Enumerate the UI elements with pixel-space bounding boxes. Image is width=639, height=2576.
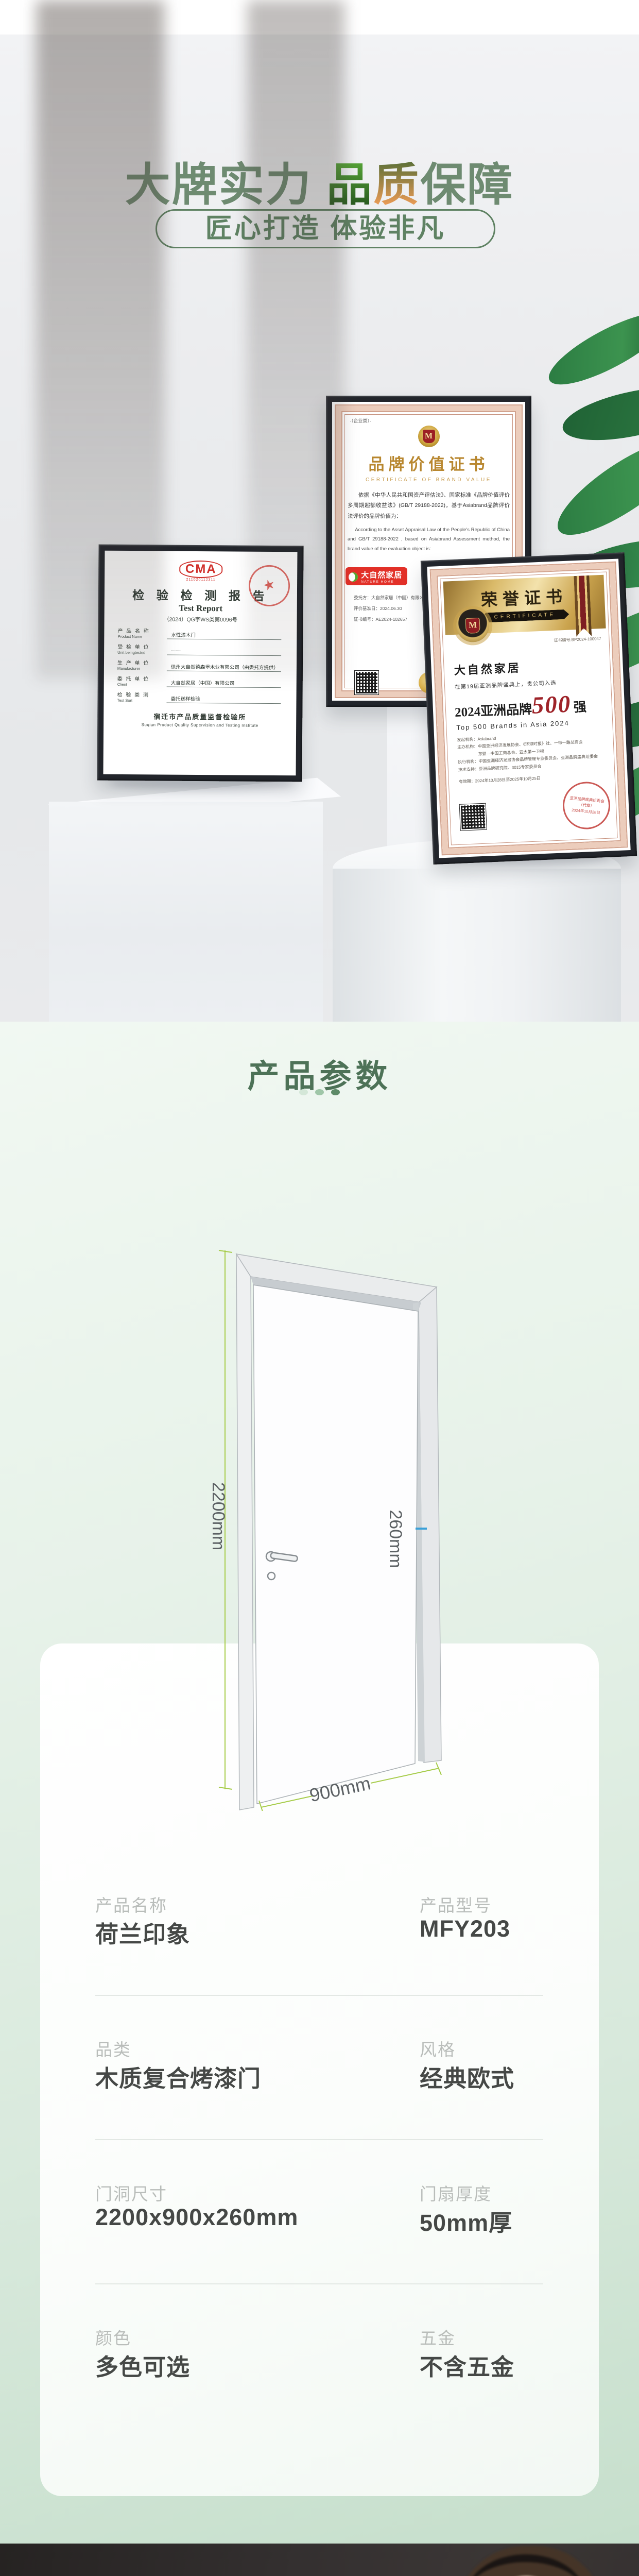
hero-title-right: 保障: [420, 159, 514, 210]
cert3-qr-code: [460, 804, 487, 831]
cert1-institute-zh: 宿迁市产品质量监督检验所: [103, 711, 296, 722]
product-detail-page: 大牌实力 品质保障 匠心打造 体验非凡 ·（企业类）· M 品牌价值证书 CER…: [0, 0, 639, 2576]
spec-label: 门洞尺寸: [95, 2180, 167, 2205]
cert3-organizations: 发起机构：Asiabrand 主办机构：中国亚洲经济发展协会、《环球时报》社、一…: [457, 730, 627, 774]
cert2-qr-code: [355, 671, 378, 694]
nature-home-logo: 大自然家居 NATURE HOME: [346, 567, 407, 585]
spec-value: MFY203: [420, 1916, 510, 1942]
cert2-paragraph-en: According to the Asset Appraisal Law of …: [348, 526, 510, 553]
spec-label: 风格: [420, 2036, 456, 2061]
spec-divider: [95, 2139, 543, 2140]
spec-value: 多色可选: [95, 2348, 190, 2382]
spec-label: 产品名称: [95, 1892, 167, 1917]
spec-value: 50mm厚: [420, 2204, 512, 2238]
service-bg-blur: [247, 0, 345, 679]
cma-logo: CMA: [179, 561, 223, 579]
spec-value: 不含五金: [420, 2348, 514, 2382]
params-title-dots: [0, 1089, 639, 1095]
spec-value: 经典欧式: [420, 2060, 514, 2093]
spec-label: 产品型号: [420, 1892, 492, 1917]
door-height-label: 2200mm: [209, 1482, 228, 1550]
pedestal-front: [49, 802, 323, 1022]
cert2-paragraph-zh: 依据《中华人民共和国资产评估法》、国家标准《品牌价值评价 多周期超额收益法》(G…: [348, 490, 510, 521]
cert3-banner: CERTIFICATE: [480, 609, 569, 623]
cert3-ribbon-icon: [574, 575, 592, 637]
spec-value: 木质复合烤漆门: [95, 2060, 261, 2093]
certificate-honor: 荣誉证书 CERTIFICATE M 证书编号:BP2024-100047 大自…: [421, 552, 637, 865]
spec-divider: [95, 1995, 543, 1996]
door-depth-label: 260mm: [386, 1510, 405, 1568]
cert1-row: 检 验 类 测Test Sort 委托送样检验: [117, 690, 296, 704]
cert2-medal-icon: M: [418, 426, 440, 447]
cert3-brand: 大自然家居: [454, 654, 623, 678]
spec-label: 颜色: [95, 2325, 131, 2349]
pedestal-cylinder: [333, 869, 621, 1022]
service-bg-blur: [36, 0, 165, 679]
cert1-institute-en: Suqian Product Quality Supervision and T…: [103, 722, 296, 728]
spec-value: 荷兰印象: [95, 1916, 190, 1949]
cert2-subtitle: CERTIFICATE OF BRAND VALUE: [332, 477, 525, 483]
spec-label: 品类: [95, 2036, 131, 2061]
cert2-title: 品牌价值证书: [332, 451, 525, 474]
spec-divider: [95, 2283, 543, 2284]
door-dimension-diagram: 2200mm 260mm 900mm: [203, 1234, 461, 1811]
hero-title-zhi: 质: [373, 159, 420, 210]
cert2-category: ·（企业类）·: [350, 417, 371, 424]
spec-label: 门扇厚度: [420, 2180, 492, 2205]
spec-label: 五金: [420, 2325, 456, 2349]
spec-value: 2200x900x260mm: [95, 2204, 298, 2231]
